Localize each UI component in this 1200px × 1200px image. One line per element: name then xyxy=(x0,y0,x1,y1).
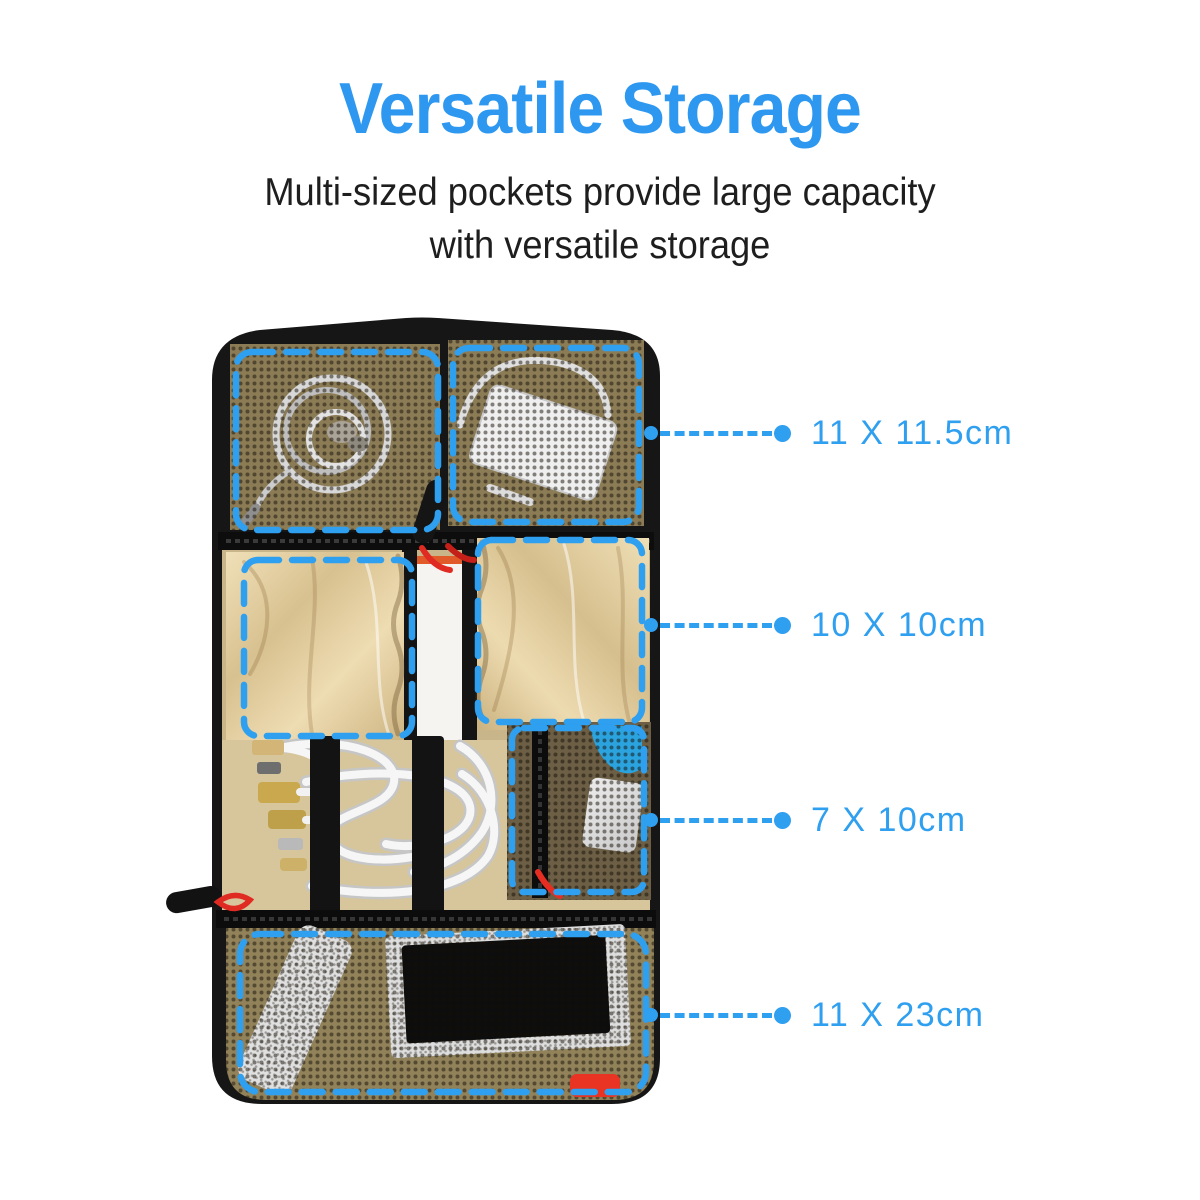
dimension-label-mid-pocket: 10 X 10cm xyxy=(811,606,987,645)
leader-end-dot xyxy=(774,425,791,442)
elastic-strap-1 xyxy=(310,736,340,914)
leader-end-dot xyxy=(774,812,791,829)
pocket-mid-right xyxy=(477,538,649,730)
white-box-item xyxy=(416,556,462,740)
cable-organizer-photo xyxy=(160,310,680,1110)
pocket-bottom xyxy=(226,921,654,1100)
leader-dashed-line xyxy=(660,431,772,436)
leader-start-dot xyxy=(644,426,658,440)
callout-mid-pocket: 10 X 10cm xyxy=(644,607,987,643)
callout-bottom-pocket: 11 X 23cm xyxy=(644,997,985,1033)
callout-zip-pocket: 7 X 10cm xyxy=(644,802,967,838)
elastic-strap-2 xyxy=(412,736,444,914)
dimension-label-zip-pocket: 7 X 10cm xyxy=(811,801,967,840)
leader-dashed-line xyxy=(660,623,772,628)
leader-dashed-line xyxy=(660,1013,772,1018)
leader-start-dot xyxy=(644,618,658,632)
dimension-label-bottom-pocket: 11 X 23cm xyxy=(811,996,985,1035)
product-scene: 11 X 11.5cm 10 X 10cm 7 X 10cm 11 X 23cm xyxy=(0,0,1200,1200)
page: Versatile Storage Multi-sized pockets pr… xyxy=(0,0,1200,1200)
leader-start-dot xyxy=(644,1008,658,1022)
leader-start-dot xyxy=(644,813,658,827)
pocket-zip-small xyxy=(507,722,651,900)
leader-dashed-line xyxy=(660,818,772,823)
zipper-main xyxy=(216,910,656,928)
pocket-mid-left xyxy=(226,552,404,742)
leader-end-dot xyxy=(774,1007,791,1024)
pocket-top-left xyxy=(230,344,440,530)
leader-end-dot xyxy=(774,617,791,634)
dimension-label-top-pocket: 11 X 11.5cm xyxy=(811,414,1013,453)
callout-top-pocket: 11 X 11.5cm xyxy=(644,415,1013,451)
pocket-top-right xyxy=(448,340,644,526)
